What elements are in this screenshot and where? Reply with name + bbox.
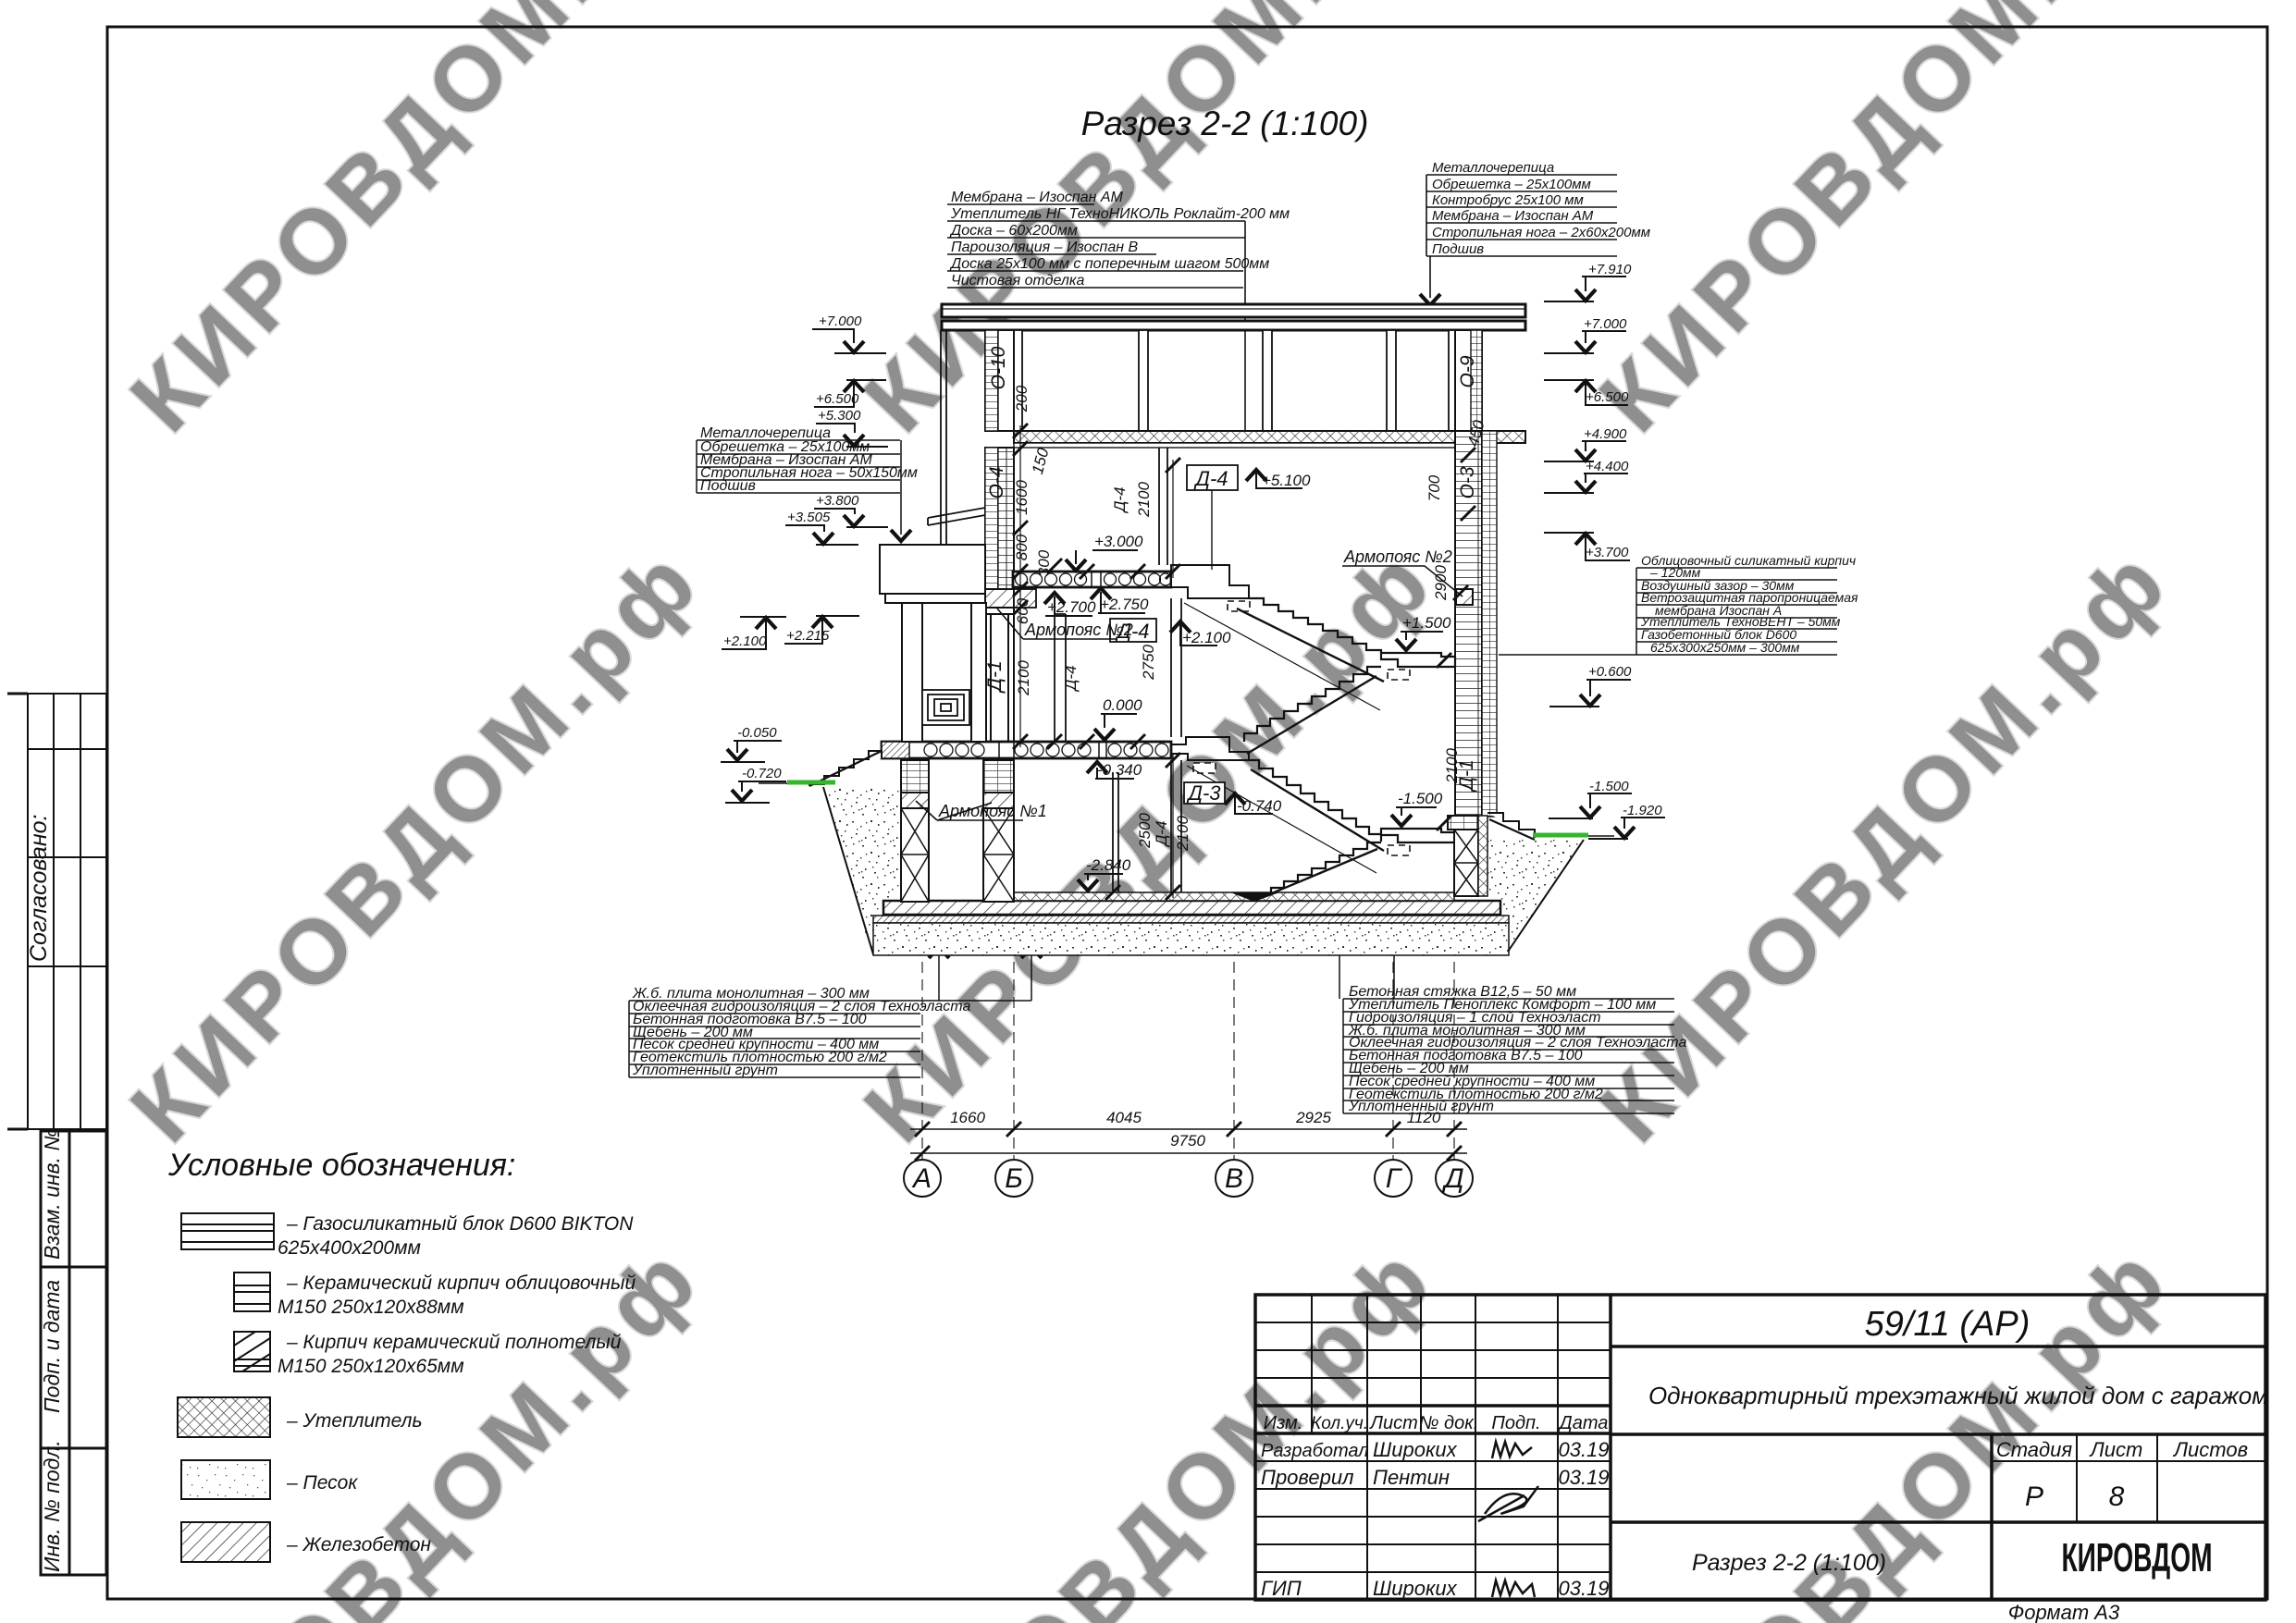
svg-text:Пароизоляция – Изоспан В: Пароизоляция – Изоспан В — [951, 240, 1139, 255]
svg-text:+2.100: +2.100 — [723, 633, 767, 649]
svg-text:-1.500: -1.500 — [1398, 790, 1443, 807]
svg-text:Д: Д — [1441, 1163, 1463, 1194]
svg-text:-0.720: -0.720 — [742, 766, 782, 781]
svg-text:Стропильная нога – 2х60х200мм: Стропильная нога – 2х60х200мм — [1432, 225, 1650, 240]
svg-text:Подп. и дата: Подп. и дата — [40, 1280, 64, 1413]
svg-text:Доска – 60х200мм: Доска – 60х200мм — [949, 223, 1078, 239]
svg-text:2900: 2900 — [1432, 565, 1450, 601]
svg-text:А: А — [911, 1163, 932, 1194]
svg-text:Армопояс №1: Армопояс №1 — [938, 802, 1047, 820]
svg-text:-2.840: -2.840 — [1086, 856, 1131, 874]
svg-text:03.19: 03.19 — [1558, 1438, 1609, 1461]
svg-text:2100: 2100 — [1443, 748, 1461, 784]
svg-text:+4.900: +4.900 — [1584, 426, 1627, 442]
svg-text:Разрез 2-2 (1:100): Разрез 2-2 (1:100) — [1081, 105, 1369, 142]
svg-text:– Песок: – Песок — [286, 1472, 358, 1494]
svg-text:2100: 2100 — [1135, 482, 1153, 518]
svg-text:Р: Р — [2025, 1482, 2043, 1512]
svg-text:+3.800: +3.800 — [816, 493, 859, 509]
svg-text:Г: Г — [1386, 1163, 1403, 1194]
svg-text:+2.100: +2.100 — [1182, 629, 1231, 646]
svg-text:700: 700 — [1426, 474, 1443, 501]
svg-text:03.19: 03.19 — [1558, 1577, 1609, 1600]
svg-text:№ док.: № док. — [1419, 1413, 1478, 1433]
svg-text:Стадия: Стадия — [1996, 1438, 2073, 1461]
svg-text:Изм.: Изм. — [1264, 1413, 1303, 1433]
svg-text:200: 200 — [1013, 385, 1031, 412]
svg-text:+3.700: +3.700 — [1586, 545, 1629, 560]
svg-text:О-3: О-3 — [1457, 466, 1478, 498]
svg-text:Б: Б — [1005, 1163, 1023, 1194]
svg-text:Дата: Дата — [1558, 1413, 1609, 1433]
svg-text:Д-3: Д-3 — [1185, 781, 1221, 805]
svg-text:-0.740: -0.740 — [1237, 797, 1282, 815]
svg-text:+7.000: +7.000 — [1584, 316, 1627, 332]
svg-text:Взам. инв. №: Взам. инв. № — [40, 1128, 64, 1260]
svg-text:– Утеплитель: – Утеплитель — [286, 1410, 423, 1432]
svg-text:В: В — [1225, 1163, 1243, 1194]
svg-text:Пентин: Пентин — [1373, 1466, 1450, 1489]
svg-text:– Газосиликатный блок D600 BIK: – Газосиликатный блок D600 BIKTON — [286, 1213, 634, 1235]
svg-text:1660: 1660 — [950, 1109, 985, 1126]
svg-text:Утеплитель НГ ТехноНИКОЛЬ Рокл: Утеплитель НГ ТехноНИКОЛЬ Роклайт-200 мм — [950, 206, 1290, 222]
svg-text:Чистовая отделка: Чистовая отделка — [951, 273, 1084, 289]
svg-text:9750: 9750 — [1170, 1132, 1205, 1150]
svg-text:+6.500: +6.500 — [1586, 389, 1629, 405]
svg-text:-0.050: -0.050 — [737, 725, 777, 741]
svg-text:2925: 2925 — [1295, 1109, 1331, 1126]
svg-text:Доска 25х100 мм с поперечным ш: Доска 25х100 мм с поперечным шагом 500мм — [949, 256, 1269, 272]
svg-text:Проверил: Проверил — [1261, 1466, 1354, 1489]
svg-text:+7.910: +7.910 — [1588, 262, 1632, 277]
svg-text:М150 250х120х65мм: М150 250х120х65мм — [278, 1356, 464, 1377]
svg-text:-1.500: -1.500 — [1589, 779, 1629, 794]
svg-text:Подп.: Подп. — [1491, 1413, 1540, 1433]
svg-text:– Керамический кирпич облицово: – Керамический кирпич облицовочный — [286, 1273, 636, 1294]
svg-text:+7.000: +7.000 — [819, 314, 862, 329]
svg-text:+3.000: +3.000 — [1094, 533, 1143, 550]
svg-text:Д-4: Д-4 — [1111, 486, 1129, 513]
svg-text:Разрез 2-2 (1:100): Разрез 2-2 (1:100) — [1692, 1550, 1886, 1576]
svg-text:8: 8 — [2109, 1482, 2125, 1512]
svg-text:Широких: Широких — [1373, 1438, 1458, 1461]
svg-text:+6.500: +6.500 — [816, 391, 859, 407]
svg-text:625х400х200мм: 625х400х200мм — [278, 1237, 421, 1259]
svg-text:Обрешетка – 25х100мм: Обрешетка – 25х100мм — [1432, 177, 1591, 192]
svg-text:+1.500: +1.500 — [1402, 614, 1451, 632]
svg-text:2100: 2100 — [1015, 660, 1032, 696]
svg-text:О-10: О-10 — [988, 346, 1009, 389]
svg-text:0.000: 0.000 — [1103, 696, 1142, 714]
svg-text:Лист: Лист — [1368, 1413, 1418, 1433]
svg-text:Контробрус 25х100 мм: Контробрус 25х100 мм — [1432, 192, 1584, 208]
svg-text:Д-1: Д-1 — [984, 660, 1006, 693]
svg-text:03.19: 03.19 — [1558, 1466, 1609, 1489]
svg-text:Д-4: Д-4 — [1153, 820, 1170, 847]
svg-text:Одноквартирный трехэтажный жил: Одноквартирный трехэтажный жилой дом с г… — [1648, 1382, 2268, 1409]
svg-text:+5.100: +5.100 — [1262, 472, 1311, 489]
svg-text:Мембрана – Изоспан АМ: Мембрана – Изоспан АМ — [951, 190, 1124, 205]
svg-text:Армопояс №2: Армопояс №2 — [1024, 621, 1133, 639]
svg-text:Армопояс №2: Армопояс №2 — [1343, 547, 1452, 566]
svg-text:2100: 2100 — [1174, 816, 1191, 852]
svg-text:Металлочерепица: Металлочерепица — [1432, 160, 1554, 176]
svg-text:Согласовано:: Согласовано: — [26, 815, 52, 962]
svg-text:КИРОВДОМ: КИРОВДОМ — [2061, 1535, 2212, 1580]
svg-text:Разработал: Разработал — [1261, 1441, 1369, 1461]
svg-text:Подшив: Подшив — [1432, 241, 1484, 257]
svg-text:О-9: О-9 — [1457, 355, 1478, 387]
svg-text:2750: 2750 — [1140, 645, 1157, 681]
svg-text:4045: 4045 — [1106, 1109, 1142, 1126]
svg-text:+0.600: +0.600 — [1588, 664, 1632, 680]
svg-text:– Железобетон: – Железобетон — [286, 1534, 431, 1555]
svg-text:+5.300: +5.300 — [818, 408, 861, 424]
svg-text:59/11 (АР): 59/11 (АР) — [1865, 1305, 2031, 1344]
svg-text:2500: 2500 — [1136, 813, 1154, 849]
svg-text:800: 800 — [1013, 534, 1031, 560]
svg-text:+2.750: +2.750 — [1100, 596, 1149, 613]
svg-text:Формат А3: Формат А3 — [2008, 1601, 2120, 1623]
svg-text:Мембрана – Изоспан АМ: Мембрана – Изоспан АМ — [1432, 208, 1594, 224]
svg-text:ГИП: ГИП — [1261, 1577, 1302, 1600]
svg-text:+3.505: +3.505 — [787, 510, 831, 525]
svg-text:-1.920: -1.920 — [1623, 803, 1662, 818]
svg-text:Широких: Широких — [1373, 1577, 1458, 1600]
svg-text:Кол.уч.: Кол.уч. — [1311, 1414, 1368, 1433]
svg-text:Д-4: Д-4 — [1192, 467, 1228, 490]
svg-text:– Кирпич керамический полнотел: – Кирпич керамический полнотелый — [286, 1332, 622, 1353]
svg-text:Инв. № подл.: Инв. № подл. — [40, 1440, 64, 1572]
svg-text:Листов: Листов — [2172, 1438, 2248, 1461]
svg-text:Д-4: Д-4 — [1062, 665, 1080, 692]
svg-text:1120: 1120 — [1407, 1109, 1441, 1126]
svg-text:1600: 1600 — [1013, 480, 1031, 515]
svg-text:О-4: О-4 — [986, 466, 1007, 498]
svg-text:Условные обозначения:: Условные обозначения: — [167, 1148, 515, 1183]
svg-text:М150 250х120х88мм: М150 250х120х88мм — [278, 1297, 464, 1318]
svg-text:Лист: Лист — [2089, 1438, 2143, 1461]
